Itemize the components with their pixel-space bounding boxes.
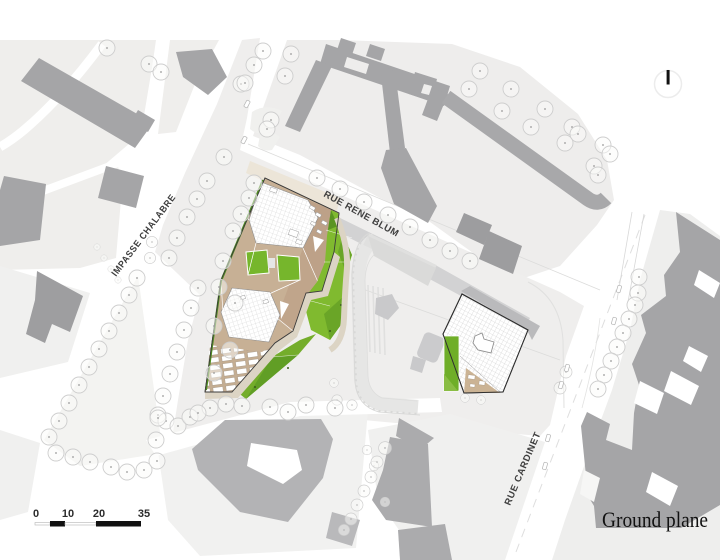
svg-text:10: 10 (62, 508, 74, 520)
svg-text:0: 0 (33, 508, 39, 520)
svg-text:Ground plane: Ground plane (602, 507, 708, 532)
svg-text:20: 20 (93, 508, 105, 520)
svg-text:35: 35 (138, 508, 150, 520)
